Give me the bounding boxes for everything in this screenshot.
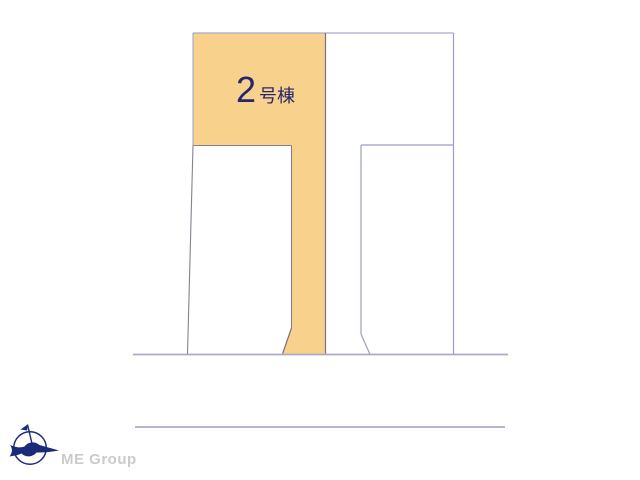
logo-bird-icon [10,442,60,456]
plot-bottom-right [361,145,454,355]
logo-pennant-icon [21,425,28,431]
plot-layout-diagram: 2号棟 ME Group [0,0,640,480]
plot-left [188,146,292,355]
plot-2-label-number: 2 [236,69,256,110]
logo-company-text: ME Group [61,451,137,468]
plot-2-label-suffix: 号棟 [259,86,295,106]
plot-top-right [326,33,454,145]
plot-layout-page: 2号棟 ME Group [0,0,640,480]
me-group-logo: ME Group [10,425,137,469]
